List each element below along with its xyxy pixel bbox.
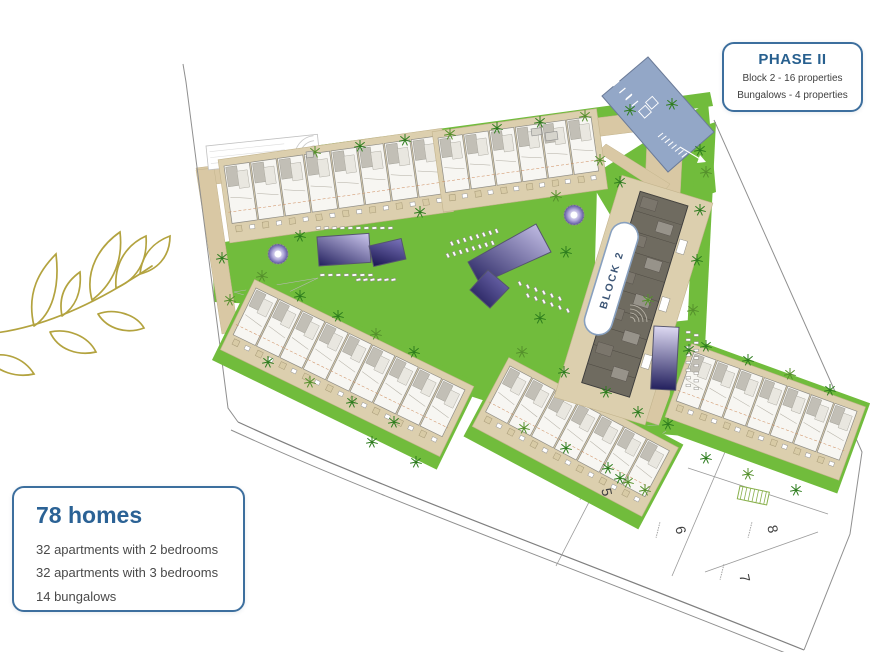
- phase-line-2: Bungalows - 4 properties: [724, 88, 861, 105]
- olive-branch-icon: [0, 238, 192, 408]
- homes-line-3: 14 bungalows: [36, 585, 243, 608]
- homes-line-2: 32 apartments with 3 bedrooms: [36, 561, 243, 584]
- masterplan-canvas: 5 6 7 8 BLOCK 2 PHASE II Block 2 - 16 pr…: [0, 0, 870, 652]
- homes-line-1: 32 apartments with 2 bedrooms: [36, 538, 243, 561]
- phase-line-1: Block 2 - 16 properties: [724, 71, 861, 88]
- phase-title: PHASE II: [724, 51, 861, 68]
- homes-info-box: 78 homes 32 apartments with 2 bedrooms 3…: [12, 486, 245, 612]
- homes-title: 78 homes: [36, 502, 243, 529]
- phase-info-box: PHASE II Block 2 - 16 properties Bungalo…: [722, 42, 863, 112]
